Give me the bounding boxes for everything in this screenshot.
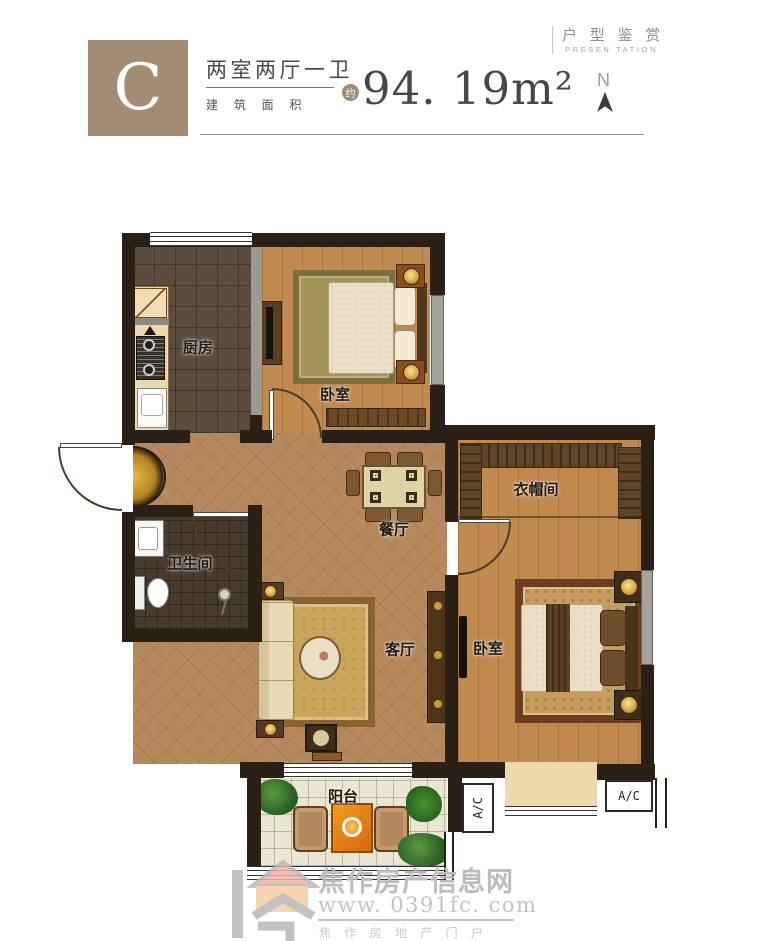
watermark-logo	[228, 856, 320, 941]
wall-segment	[445, 440, 458, 522]
dining-chair	[397, 452, 423, 466]
table-lamp-icon	[403, 268, 420, 285]
bed-bench	[326, 408, 426, 427]
toilet-tank	[134, 576, 145, 610]
wall-segment	[251, 247, 262, 430]
wall-art	[312, 752, 342, 761]
wall-segment	[445, 575, 458, 764]
range-hood-icon	[144, 326, 156, 335]
table-lamp-icon	[403, 364, 420, 381]
room-label-bedroom-top: 卧室	[320, 384, 350, 405]
wall-segment	[641, 440, 654, 570]
entry-door-leaf	[60, 443, 122, 448]
balcony-palm-plant	[406, 786, 442, 822]
bed-top-duvet	[328, 282, 394, 374]
place-setting	[370, 492, 381, 503]
approx-badge: 约	[342, 84, 359, 101]
entry-door-arc	[58, 447, 122, 511]
balcony-chair	[293, 806, 328, 852]
counter-divider	[132, 318, 169, 325]
ac-platform-left: A/C	[462, 783, 494, 833]
wall-segment	[133, 505, 193, 517]
wall-segment	[240, 430, 262, 443]
bed-right-headboard	[625, 606, 638, 690]
ac-platform-right: A/C	[605, 780, 653, 812]
sliding-door	[284, 763, 412, 777]
place-setting	[406, 492, 417, 503]
floorplan-page: C 两室两厅一卫 建 筑 面 积 约 94. 19m² 户 型 鉴 赏 PRES…	[0, 0, 757, 941]
bathroom-sink-basin	[138, 527, 158, 550]
wall-segment	[448, 778, 462, 832]
room-label-kitchen: 厨房	[183, 337, 213, 358]
burner	[143, 339, 155, 351]
room-label-bathroom: 卫生间	[167, 553, 212, 574]
bedroom-right-door-leaf	[458, 519, 510, 523]
watermark-slogan: 焦 作 房 地 产 门 户	[319, 924, 488, 941]
ac-label: A/C	[471, 797, 485, 819]
watermark-site-url: www. 0391fc. com	[318, 893, 537, 917]
area-value: 94. 19m²	[362, 62, 574, 115]
bed-right-pillow	[600, 610, 626, 646]
area-caption: 建 筑 面 积	[206, 96, 307, 113]
kitchen-window	[150, 232, 252, 246]
wall-segment	[248, 505, 262, 629]
ac-platform-rail	[655, 778, 667, 828]
burner	[143, 364, 155, 376]
cabinet-ornament	[434, 651, 442, 659]
wall-segment	[430, 233, 445, 295]
plant-stand-top	[313, 730, 329, 746]
place-setting	[370, 470, 381, 481]
dining-chair	[428, 470, 442, 496]
wardrobe-right	[618, 447, 642, 519]
cabinet-ornament	[434, 700, 442, 708]
table-lamp-icon	[620, 696, 638, 714]
title-underline	[206, 87, 334, 88]
bay-window-floor	[505, 762, 597, 806]
bay-window-sill	[505, 806, 597, 816]
coffee-table	[299, 636, 341, 680]
wall-segment	[240, 762, 284, 778]
table-lamp-icon	[620, 578, 638, 596]
wall-tv-icon	[459, 616, 467, 678]
room-label-cloakroom: 衣帽间	[513, 479, 558, 500]
sink-basin	[141, 394, 163, 416]
wall-segment	[412, 762, 448, 778]
layout-title: 两室两厅一卫	[206, 54, 353, 84]
wall-segment	[122, 512, 135, 642]
sofa	[258, 600, 294, 720]
header-divider-line	[200, 134, 644, 135]
table-lamp-icon	[264, 723, 277, 736]
unit-letter: C	[114, 56, 163, 120]
room-label-living: 客厅	[385, 639, 415, 660]
window	[641, 570, 653, 665]
window	[431, 295, 444, 385]
wall-segment	[448, 762, 505, 778]
wall-segment	[122, 629, 262, 642]
room-label-dining: 餐厅	[379, 519, 409, 540]
bed-right-pillow	[600, 650, 626, 686]
series-subtitle: PRESEN TATION	[565, 45, 658, 54]
balcony-plant	[256, 779, 298, 815]
bed-top-pillow	[394, 286, 416, 326]
wall-segment	[322, 430, 445, 443]
cloak-divider-line	[458, 516, 642, 518]
compass-north-label: N	[597, 70, 610, 91]
dining-chair	[346, 470, 360, 496]
fridge	[134, 288, 167, 318]
wall-segment	[122, 233, 135, 445]
room-label-balcony: 阳台	[328, 786, 358, 807]
compass-north-icon	[597, 92, 613, 112]
cabinet-ornament	[434, 602, 442, 610]
tv-icon	[266, 307, 273, 359]
wall-segment	[597, 764, 655, 780]
bed-right-throw	[546, 604, 570, 692]
wall-segment	[641, 665, 654, 766]
balcony-table-ring	[342, 817, 362, 837]
wardrobe-top	[460, 443, 622, 468]
dining-chair	[365, 452, 391, 466]
watermark-underline	[318, 919, 514, 921]
table-lamp-icon	[264, 585, 277, 598]
room-label-bedroom-right: 卧室	[473, 638, 503, 659]
wall-segment	[430, 425, 655, 440]
ac-label: A/C	[618, 789, 640, 803]
unit-badge: C	[88, 40, 188, 136]
wall-segment	[122, 430, 190, 443]
wardrobe-left	[460, 443, 482, 519]
wall-segment	[262, 430, 272, 443]
series-divider	[552, 26, 553, 54]
place-setting	[406, 470, 417, 481]
bathroom-door-leaf	[193, 512, 250, 517]
series-title: 户 型 鉴 赏	[562, 24, 664, 45]
